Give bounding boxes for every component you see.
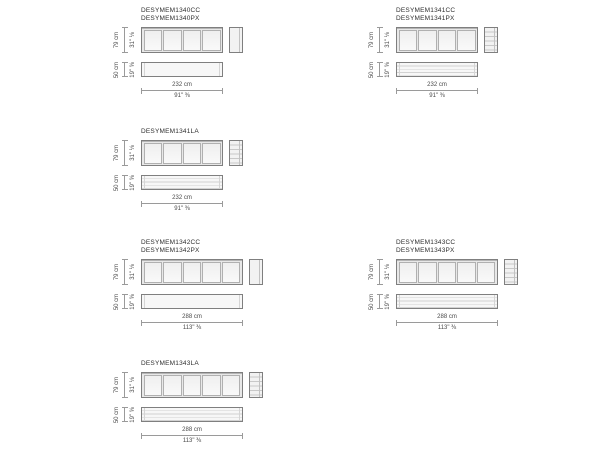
depth-inch-label: 19" ⅝ [130,62,136,77]
door-panel [202,30,221,52]
depth-inch-label: 19" ⅝ [385,294,391,309]
height-dimension: 79 cm 31" ⅛ [108,140,141,166]
lower-elevation [141,62,223,77]
height-inch-label: 31" ⅛ [130,32,136,47]
door-panel [144,30,163,52]
front-elevation [141,140,223,166]
model-code: DESYMEM1341PX [396,15,498,23]
height-dimension-line [379,259,380,285]
width-inch-label: 91" ⅜ [141,92,223,100]
model-codes: DESYMEM1343LA [141,360,263,368]
depth-cm-label: 50 cm [114,406,120,422]
elevation-row: 79 cm 31" ⅛ [108,140,243,166]
width-inch-label: 91" ⅜ [396,92,478,100]
model-code: DESYMEM1342PX [141,247,263,255]
lower-elevation [141,175,223,190]
door-panel [418,262,437,284]
door-panel [457,262,476,284]
door-panel [144,143,163,165]
model-code: DESYMEM1341CC [396,7,498,15]
height-dimension: 79 cm 31" ⅛ [363,259,396,285]
width-dimension: 232 cm 91" ⅜ [141,194,223,213]
side-elevation [249,259,263,285]
height-dimension: 79 cm 31" ⅛ [108,259,141,285]
model-code: DESYMEM1340CC [141,7,243,15]
height-inch-label: 31" ⅛ [130,264,136,279]
plinth-row: 50 cm 19" ⅝ [108,407,263,422]
width-inch-label: 113" ⅜ [141,324,243,332]
lower-elevation [396,294,498,309]
height-cm-label: 79 cm [369,32,375,48]
depth-dimension: 50 cm 19" ⅝ [108,294,141,309]
diagram-group-1340: DESYMEM1340CC DESYMEM1340PX 79 cm 31" ⅛ … [108,7,243,100]
depth-inch-label: 19" ⅝ [385,62,391,77]
side-elevation [229,140,243,166]
height-dimension-line [124,259,125,285]
lower-elevation [141,294,243,309]
lower-elevation [396,62,478,77]
width-dimension: 288 cm 113" ⅜ [141,313,243,332]
depth-dimension-line [124,294,125,309]
width-dimension-line [141,90,223,91]
model-code: DESYMEM1342CC [141,239,263,247]
door-panel [438,262,457,284]
model-code: DESYMEM1343CC [396,239,518,247]
elevation-row: 79 cm 31" ⅛ [363,27,498,53]
depth-dimension-line [124,175,125,190]
width-dimension-line [141,322,243,323]
width-cm-label: 232 cm [141,81,223,89]
depth-dimension-line [379,62,380,77]
height-cm-label: 79 cm [114,264,120,280]
depth-inch-label: 19" ⅝ [130,407,136,422]
side-elevation [484,27,498,53]
depth-cm-label: 50 cm [369,61,375,77]
front-elevation [141,372,243,398]
front-elevation [396,27,478,53]
elevation-row: 79 cm 31" ⅛ [363,259,518,285]
width-cm-label: 232 cm [141,194,223,202]
model-codes: DESYMEM1342CC DESYMEM1342PX [141,239,263,255]
height-dimension-line [124,27,125,53]
depth-cm-label: 50 cm [114,174,120,190]
depth-dimension: 50 cm 19" ⅝ [108,62,141,77]
height-inch-label: 31" ⅛ [385,264,391,279]
diagram-group-1342: DESYMEM1342CC DESYMEM1342PX 79 cm 31" ⅛ … [108,239,263,332]
door-panel [202,262,221,284]
elevation-row: 79 cm 31" ⅛ [108,372,263,398]
door-panel [457,30,476,52]
depth-dimension: 50 cm 19" ⅝ [363,294,396,309]
width-dimension: 288 cm 113" ⅜ [396,313,498,332]
plinth-row: 50 cm 19" ⅝ [363,294,518,309]
door-panel [163,262,182,284]
door-panel [202,375,221,397]
model-code: DESYMEM1343PX [396,247,518,255]
height-cm-label: 79 cm [114,32,120,48]
width-dimension: 232 cm 91" ⅜ [141,81,223,100]
door-panel [438,30,457,52]
side-elevation [504,259,518,285]
model-codes: DESYMEM1341CC DESYMEM1341PX [396,7,498,23]
width-cm-label: 288 cm [396,313,498,321]
width-dimension-line [141,203,223,204]
door-panel [418,30,437,52]
height-dimension-line [379,27,380,53]
depth-dimension-line [379,294,380,309]
width-cm-label: 288 cm [141,313,243,321]
height-cm-label: 79 cm [114,377,120,393]
door-panel [222,375,241,397]
depth-dimension: 50 cm 19" ⅝ [108,407,141,422]
depth-cm-label: 50 cm [369,293,375,309]
side-elevation [229,27,243,53]
door-panel [202,143,221,165]
elevation-row: 79 cm 31" ⅛ [108,259,263,285]
width-inch-label: 91" ⅜ [141,205,223,213]
width-dimension-line [141,435,243,436]
model-codes: DESYMEM1340CC DESYMEM1340PX [141,7,243,23]
depth-cm-label: 50 cm [114,293,120,309]
door-panel [144,375,163,397]
model-codes: DESYMEM1341LA [141,128,243,136]
door-panel [144,262,163,284]
diagram-group-1343: DESYMEM1343CC DESYMEM1343PX 79 cm 31" ⅛ … [363,239,518,332]
door-panel [163,375,182,397]
depth-inch-label: 19" ⅝ [130,294,136,309]
front-elevation [141,259,243,285]
width-cm-label: 232 cm [396,81,478,89]
side-elevation [249,372,263,398]
front-elevation [396,259,498,285]
height-inch-label: 31" ⅛ [130,377,136,392]
depth-dimension-line [124,407,125,422]
door-panel [163,143,182,165]
height-cm-label: 79 cm [369,264,375,280]
elevation-row: 79 cm 31" ⅛ [108,27,243,53]
model-code: DESYMEM1340PX [141,15,243,23]
model-codes: DESYMEM1343CC DESYMEM1343PX [396,239,518,255]
plinth-row: 50 cm 19" ⅝ [363,62,498,77]
door-panel [183,262,202,284]
plinth-row: 50 cm 19" ⅝ [108,294,263,309]
height-cm-label: 79 cm [114,145,120,161]
height-dimension: 79 cm 31" ⅛ [363,27,396,53]
height-dimension-line [124,140,125,166]
diagram-group-1341la: DESYMEM1341LA 79 cm 31" ⅛ 50 cm 19" ⅝ 23… [108,128,243,213]
depth-dimension: 50 cm 19" ⅝ [108,175,141,190]
door-panel [477,262,496,284]
height-inch-label: 31" ⅛ [130,145,136,160]
front-elevation [141,27,223,53]
width-inch-label: 113" ⅜ [141,437,243,445]
model-code: DESYMEM1343LA [141,360,263,368]
height-dimension: 79 cm 31" ⅛ [108,27,141,53]
door-panel [399,262,418,284]
diagram-group-1343la: DESYMEM1343LA 79 cm 31" ⅛ 50 cm 19" ⅝ 28… [108,360,263,445]
diagram-group-1341: DESYMEM1341CC DESYMEM1341PX 79 cm 31" ⅛ … [363,7,498,100]
door-panel [399,30,418,52]
width-dimension: 232 cm 91" ⅜ [396,81,478,100]
depth-inch-label: 19" ⅝ [130,175,136,190]
width-dimension-line [396,322,498,323]
width-dimension: 288 cm 113" ⅜ [141,426,243,445]
width-inch-label: 113" ⅜ [396,324,498,332]
model-code: DESYMEM1341LA [141,128,243,136]
plinth-row: 50 cm 19" ⅝ [108,175,243,190]
lower-elevation [141,407,243,422]
door-panel [163,30,182,52]
height-inch-label: 31" ⅛ [385,32,391,47]
width-cm-label: 288 cm [141,426,243,434]
door-panel [222,262,241,284]
door-panel [183,30,202,52]
depth-cm-label: 50 cm [114,61,120,77]
depth-dimension: 50 cm 19" ⅝ [363,62,396,77]
door-panel [183,375,202,397]
door-panel [183,143,202,165]
width-dimension-line [396,90,478,91]
catalog-page: { "colors": { "rect_border": "#7f7f7f", … [0,0,600,450]
plinth-row: 50 cm 19" ⅝ [108,62,243,77]
height-dimension-line [124,372,125,398]
depth-dimension-line [124,62,125,77]
height-dimension: 79 cm 31" ⅛ [108,372,141,398]
